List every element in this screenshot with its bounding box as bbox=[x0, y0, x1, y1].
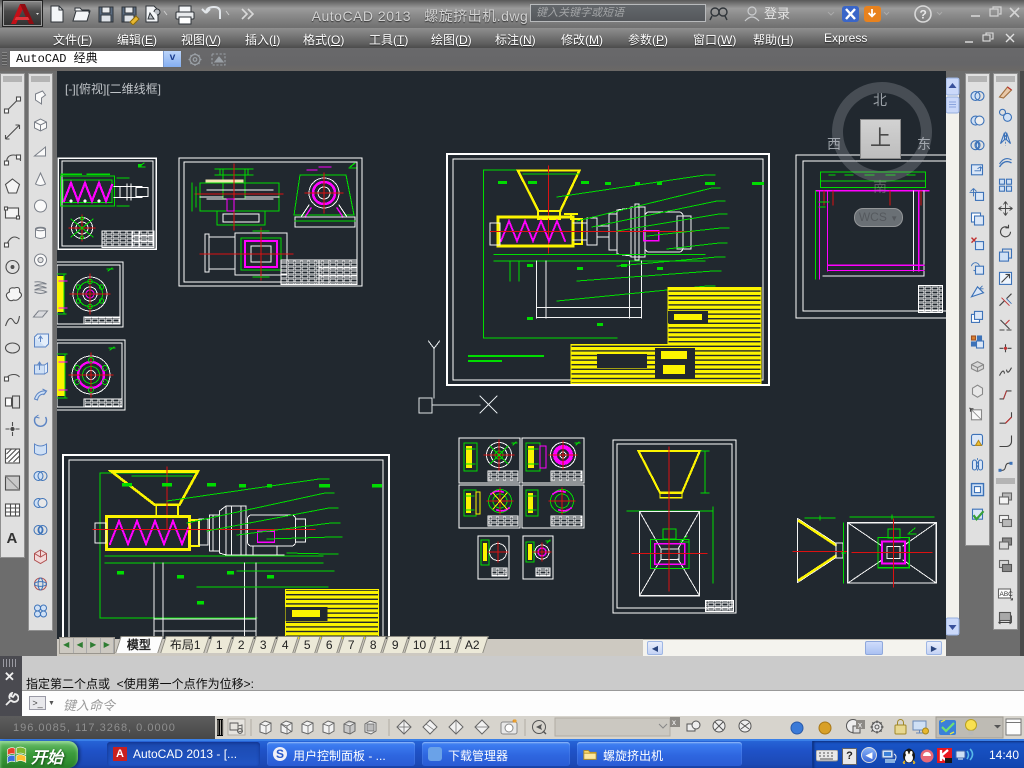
svg-text:x: x bbox=[672, 718, 676, 727]
svg-text:ABC: ABC bbox=[1000, 591, 1014, 598]
svg-text:A: A bbox=[7, 530, 18, 547]
svg-text:?: ? bbox=[920, 8, 927, 22]
svg-text:登录: 登录 bbox=[764, 6, 790, 21]
svg-text:x: x bbox=[858, 721, 862, 730]
